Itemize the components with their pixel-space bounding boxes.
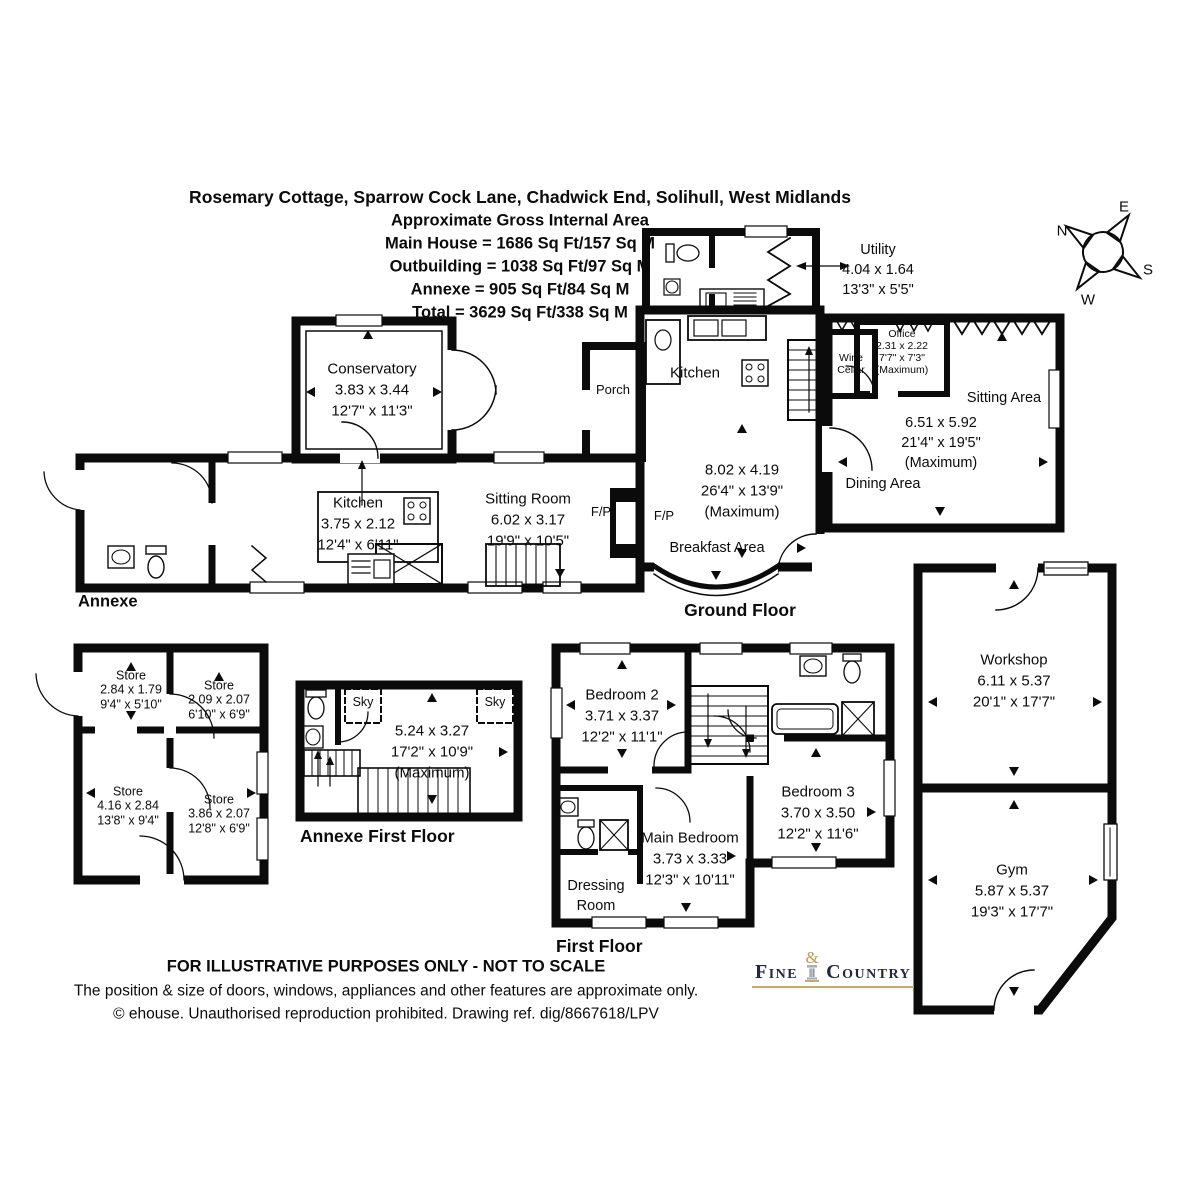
column-icon — [804, 965, 820, 982]
room-label-store-3: Store 4.16 x 2.84 13'8" x 9'4" — [97, 785, 159, 828]
header-outbuilding-area: Outbuilding = 1038 Sq Ft/97 Sq M — [390, 258, 651, 277]
room-label-store-1: Store 2.84 x 1.79 9'4" x 5'10" — [100, 669, 162, 712]
room-label-bedroom-3: Bedroom 3 3.70 x 3.50 12'2" x 11'6" — [777, 782, 858, 845]
compass-south: S — [1143, 260, 1153, 281]
label-sitting-dining-dims: 6.51 x 5.92 21'4" x 19'5" (Maximum) — [901, 413, 981, 473]
room-label-conservatory: Conservatory 3.83 x 3.44 12'7" x 11'3" — [327, 359, 416, 422]
room-label-dressing-room: Dressing Room — [567, 876, 624, 916]
room-label-porch: Porch — [596, 381, 630, 399]
header-main-house-area: Main House = 1686 Sq Ft/157 Sq M — [385, 235, 655, 254]
footer-copyright: © ehouse. Unauthorised reproduction proh… — [113, 1003, 659, 1024]
label-skylight-left: Sky — [353, 695, 374, 709]
label-annexe-first-floor: Annexe First Floor — [300, 824, 455, 848]
utility-walls — [646, 226, 850, 310]
label-annexe: Annexe — [78, 591, 138, 614]
outbuilding-walls — [918, 562, 1117, 1018]
room-label-sitting-area: Sitting Area — [967, 388, 1041, 408]
logo-ampersand-column: & — [801, 952, 823, 982]
ampersand-icon: & — [806, 952, 819, 965]
label-ground-floor: Ground Floor — [684, 598, 796, 622]
room-label-utility: Utility 4.04 x 1.64 13'3" x 5'5" — [842, 240, 914, 300]
label-kitchen-breakfast-dims: 8.02 x 4.19 26'4" x 13'9" (Maximum) — [701, 460, 783, 523]
room-label-office: Office 2.31 x 2.22 7'7" x 7'3" (Maximum) — [876, 328, 929, 376]
room-label-annexe-kitchen: Kitchen 3.75 x 2.12 12'4" x 6'11" — [317, 493, 398, 556]
compass-north: N — [1057, 221, 1068, 242]
label-fireplace-right: F/P — [654, 507, 674, 525]
logo-country-text: Country — [826, 962, 911, 982]
compass-icon — [1040, 189, 1165, 314]
floorplan-page: Rosemary Cottage, Sparrow Cock Lane, Cha… — [0, 0, 1200, 1200]
compass-west: W — [1081, 290, 1095, 311]
header-total-area: Total = 3629 Sq Ft/338 Sq M — [412, 304, 628, 323]
logo-fine-text: Fine — [755, 962, 798, 982]
room-label-dining-area: Dining Area — [846, 474, 921, 494]
room-label-breakfast-area: Breakfast Area — [669, 538, 764, 558]
footer-disclaimer-approx: The position & size of doors, windows, a… — [74, 980, 698, 1001]
header-subtitle: Approximate Gross Internal Area — [391, 212, 649, 231]
room-label-store-2: Store 2.09 x 2.07 6'10" x 6'9" — [188, 679, 250, 722]
room-label-sitting-room: Sitting Room 6.02 x 3.17 19'9" x 10'5" — [485, 489, 571, 552]
label-fireplace-left: F/P — [591, 503, 611, 521]
room-label-workshop: Workshop 6.11 x 5.37 20'1" x 17'7" — [973, 650, 1055, 713]
page-title: Rosemary Cottage, Sparrow Cock Lane, Cha… — [189, 187, 851, 207]
room-label-gym: Gym 5.87 x 5.37 19'3" x 17'7" — [971, 860, 1053, 923]
footer-disclaimer-scale: FOR ILLUSTRATIVE PURPOSES ONLY - NOT TO … — [167, 956, 606, 979]
label-annexe-ff-dims: 5.24 x 3.27 17'2" x 10'9" (Maximum) — [391, 721, 473, 784]
label-first-floor: First Floor — [556, 934, 643, 958]
fine-and-country-logo: Fine & Country — [752, 952, 914, 988]
header-annexe-area: Annexe = 905 Sq Ft/84 Sq M — [411, 281, 630, 300]
label-skylight-right: Sky — [485, 695, 506, 709]
room-label-kitchen: Kitchen — [670, 363, 720, 384]
compass-east: E — [1119, 197, 1129, 218]
room-label-wine-cellar: Wine Cellar — [837, 352, 864, 376]
room-label-store-4: Store 3.86 x 2.07 12'8" x 6'9" — [188, 793, 250, 836]
room-label-bedroom-2: Bedroom 2 3.71 x 3.37 12'2" x 11'1" — [581, 685, 662, 748]
room-label-main-bedroom: Main Bedroom 3.73 x 3.33 12'3" x 10'11" — [641, 828, 739, 891]
